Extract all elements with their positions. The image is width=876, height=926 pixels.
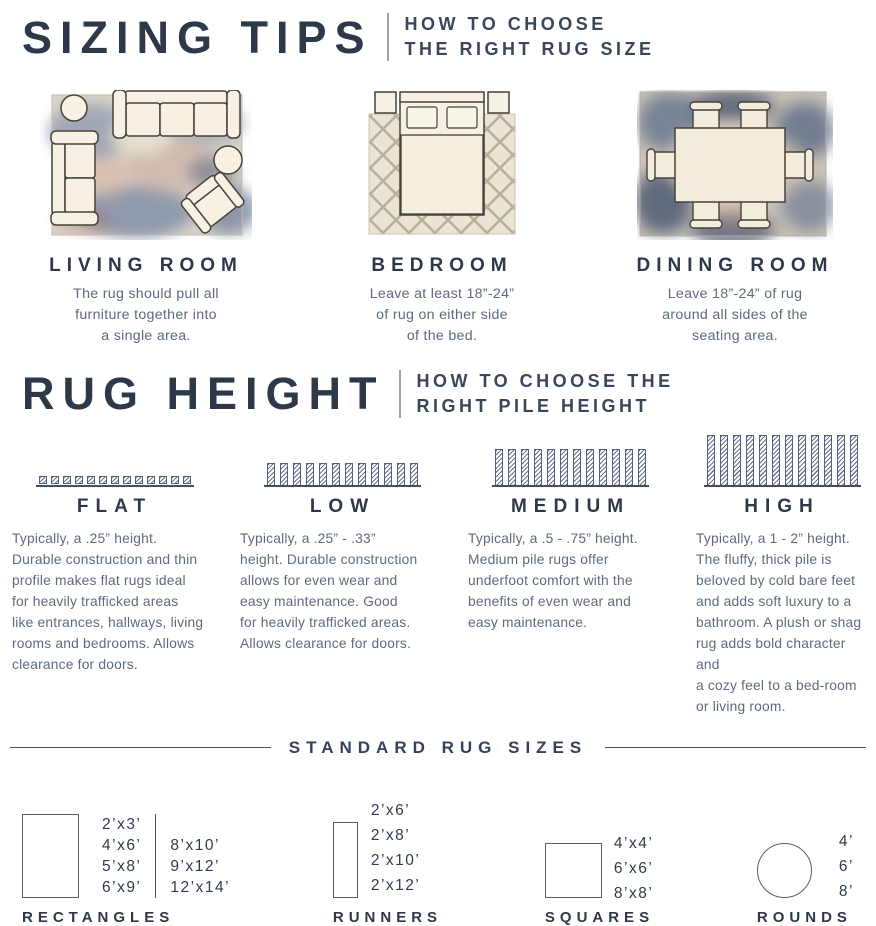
- pile-high-description: Typically, a 1 - 2” height. The fluffy, …: [696, 529, 868, 718]
- size-value: 8’: [839, 879, 854, 904]
- runners-group: 2’x6’ 2’x8’ 2’x10’ 2’x12’ RUNNERS: [333, 798, 442, 926]
- runner-shape: [333, 822, 358, 898]
- sizing-tips-header: SIZING TIPS HOW TO CHOOSE THE RIGHT RUG …: [0, 0, 876, 62]
- squares-label: SQUARES: [545, 909, 654, 926]
- pile-medium-label: MEDIUM: [468, 496, 673, 518]
- dining-room-section: DINING ROOM Leave 18”-24” of rug around …: [610, 90, 860, 346]
- size-value: 8’x10’: [170, 835, 230, 856]
- pile-low-label: LOW: [240, 496, 445, 518]
- standard-sizes-header: STANDARD RUG SIZES: [10, 738, 866, 758]
- rectangle-shape: [22, 814, 79, 898]
- size-value: 2’x12’: [371, 873, 421, 898]
- square-shape: [545, 843, 602, 898]
- rectangles-divider-line: [155, 814, 156, 898]
- rounds-sizes: 4’ 6’ 8’: [839, 829, 854, 904]
- divider-line-right: [605, 747, 866, 748]
- size-value: 2’x6’: [371, 798, 421, 823]
- pile-high-label: HIGH: [696, 496, 868, 518]
- living-room-description: The rug should pull all furniture togeth…: [73, 284, 219, 346]
- standard-sizes-title: STANDARD RUG SIZES: [271, 738, 605, 758]
- runners-label: RUNNERS: [333, 909, 442, 926]
- rectangles-sizes-col2: 8’x10’ 9’x12’ 12’x14’: [170, 835, 230, 898]
- bedroom-illustration: [357, 90, 527, 240]
- divider-line-left: [10, 747, 271, 748]
- dining-room-title: DINING ROOM: [637, 255, 834, 277]
- pile-low-illustration: [264, 463, 421, 487]
- bedroom-title: BEDROOM: [371, 255, 512, 277]
- pile-low-description: Typically, a .25” - .33” height. Durable…: [240, 529, 445, 655]
- bedroom-section: BEDROOM Leave at least 18”-24” of rug on…: [331, 90, 553, 346]
- size-value: 6’x9’: [102, 877, 141, 898]
- header-divider: [387, 13, 389, 61]
- size-value: 9’x12’: [170, 856, 230, 877]
- squares-group: 4’x4’ 6’x6’ 8’x8’ SQUARES: [545, 831, 654, 926]
- rug-height-header: RUG HEIGHT HOW TO CHOOSE THE RIGHT PILE …: [0, 369, 876, 419]
- pile-medium-description: Typically, a .5 - .75” height. Medium pi…: [468, 529, 673, 634]
- pile-flat-label: FLAT: [12, 496, 217, 518]
- pile-heights-row: FLAT Typically, a .25” height. Durable c…: [0, 435, 876, 718]
- size-value: 2’x10’: [371, 848, 421, 873]
- rectangles-group: 2’x3’ 4’x6’ 5’x8’ 6’x9’ 8’x10’ 9’x12’ 12…: [22, 814, 230, 926]
- pile-high-illustration: [704, 435, 861, 487]
- pile-flat-description: Typically, a .25” height. Durable constr…: [12, 529, 217, 676]
- size-value: 4’: [839, 829, 854, 854]
- size-value: 12’x14’: [170, 877, 230, 898]
- rounds-label: ROUNDS: [757, 909, 854, 926]
- runners-sizes: 2’x6’ 2’x8’ 2’x10’ 2’x12’: [371, 798, 421, 898]
- sizing-tips-title: SIZING TIPS: [22, 14, 373, 61]
- header-divider: [399, 370, 401, 418]
- rug-height-subtitle: HOW TO CHOOSE THE RIGHT PILE HEIGHT: [417, 369, 674, 419]
- standard-sizes-row: 2’x3’ 4’x6’ 5’x8’ 6’x9’ 8’x10’ 9’x12’ 12…: [0, 798, 876, 926]
- size-value: 6’x6’: [614, 856, 653, 881]
- squares-sizes: 4’x4’ 6’x6’ 8’x8’: [614, 831, 653, 906]
- pile-flat-section: FLAT Typically, a .25” height. Durable c…: [12, 435, 217, 718]
- dining-room-illustration: [637, 90, 833, 240]
- dining-room-description: Leave 18”-24” of rug around all sides of…: [662, 284, 808, 346]
- rounds-group: 4’ 6’ 8’ ROUNDS: [757, 829, 854, 926]
- living-room-section: LIVING ROOM The rug should pull all furn…: [18, 90, 274, 346]
- rectangles-sizes-col1: 2’x3’ 4’x6’ 5’x8’ 6’x9’: [102, 814, 141, 898]
- pile-high-section: HIGH Typically, a 1 - 2” height. The flu…: [696, 435, 868, 718]
- bedroom-description: Leave at least 18”-24” of rug on either …: [370, 284, 515, 346]
- rectangles-label: RECTANGLES: [22, 909, 230, 926]
- pile-medium-section: MEDIUM Typically, a .5 - .75” height. Me…: [468, 435, 673, 718]
- size-value: 6’: [839, 854, 854, 879]
- size-value: 4’x6’: [102, 835, 141, 856]
- rooms-row: LIVING ROOM The rug should pull all furn…: [0, 90, 876, 346]
- pile-low-section: LOW Typically, a .25” - .33” height. Dur…: [240, 435, 445, 718]
- sizing-tips-subtitle: HOW TO CHOOSE THE RIGHT RUG SIZE: [405, 12, 655, 62]
- size-value: 8’x8’: [614, 881, 653, 906]
- pile-medium-illustration: [492, 449, 649, 487]
- living-room-title: LIVING ROOM: [49, 255, 243, 277]
- size-value: 5’x8’: [102, 856, 141, 877]
- living-room-illustration: [40, 90, 252, 240]
- pile-flat-illustration: [36, 476, 194, 487]
- rug-sizing-infographic: SIZING TIPS HOW TO CHOOSE THE RIGHT RUG …: [0, 0, 876, 889]
- size-value: 4’x4’: [614, 831, 653, 856]
- circle-shape: [757, 843, 812, 898]
- size-value: 2’x8’: [371, 823, 421, 848]
- rug-height-title: RUG HEIGHT: [22, 370, 385, 417]
- size-value: 2’x3’: [102, 814, 141, 835]
